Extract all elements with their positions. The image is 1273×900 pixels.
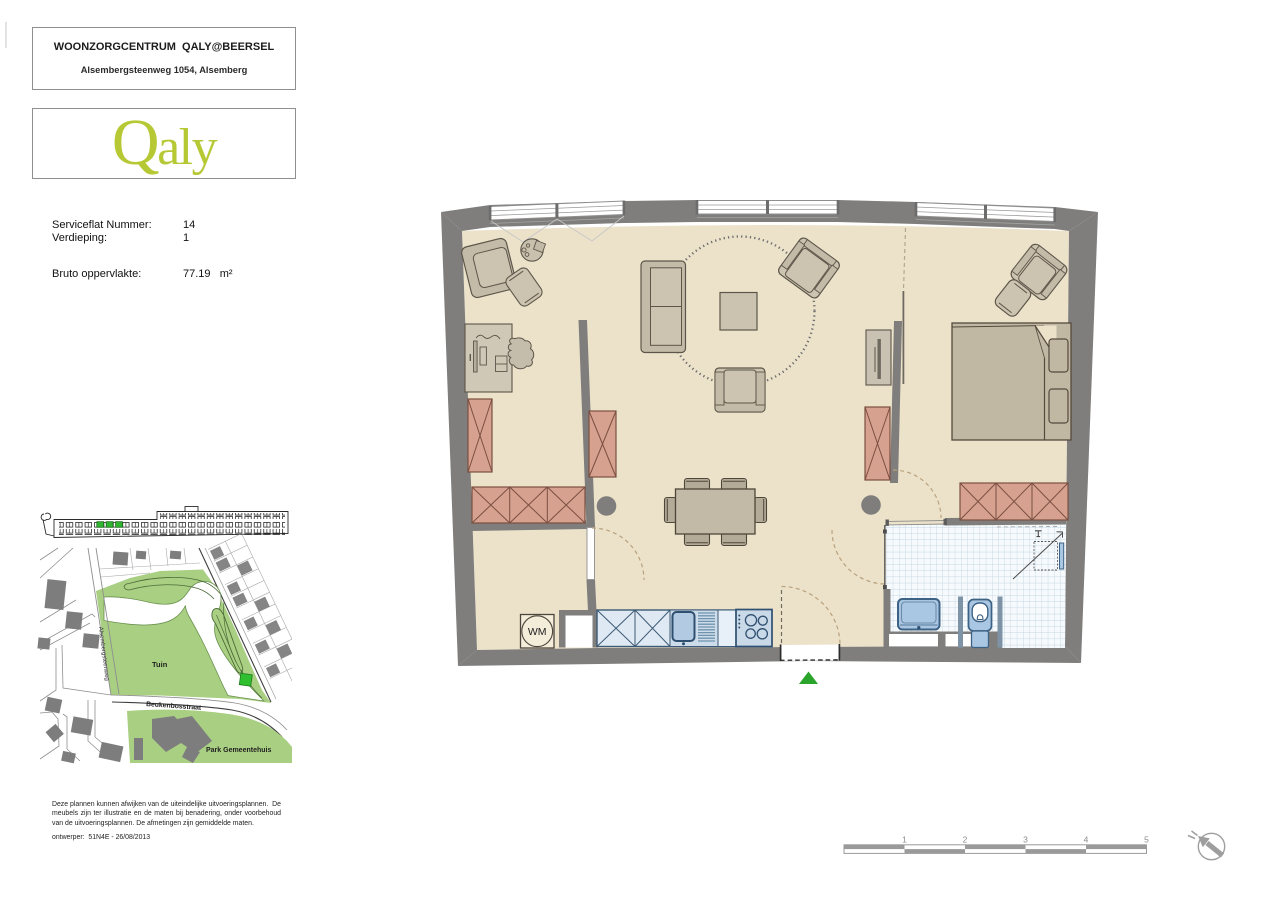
svg-text:3: 3 [1023, 835, 1028, 845]
svg-text:5: 5 [1144, 835, 1149, 845]
svg-text:Tuin: Tuin [152, 660, 168, 669]
svg-text:Park Gemeentehuis: Park Gemeentehuis [206, 747, 271, 754]
svg-text:4: 4 [1084, 835, 1089, 845]
svg-text:1: 1 [902, 835, 907, 845]
svg-text:2: 2 [963, 835, 968, 845]
svg-text:WM: WM [528, 626, 547, 638]
